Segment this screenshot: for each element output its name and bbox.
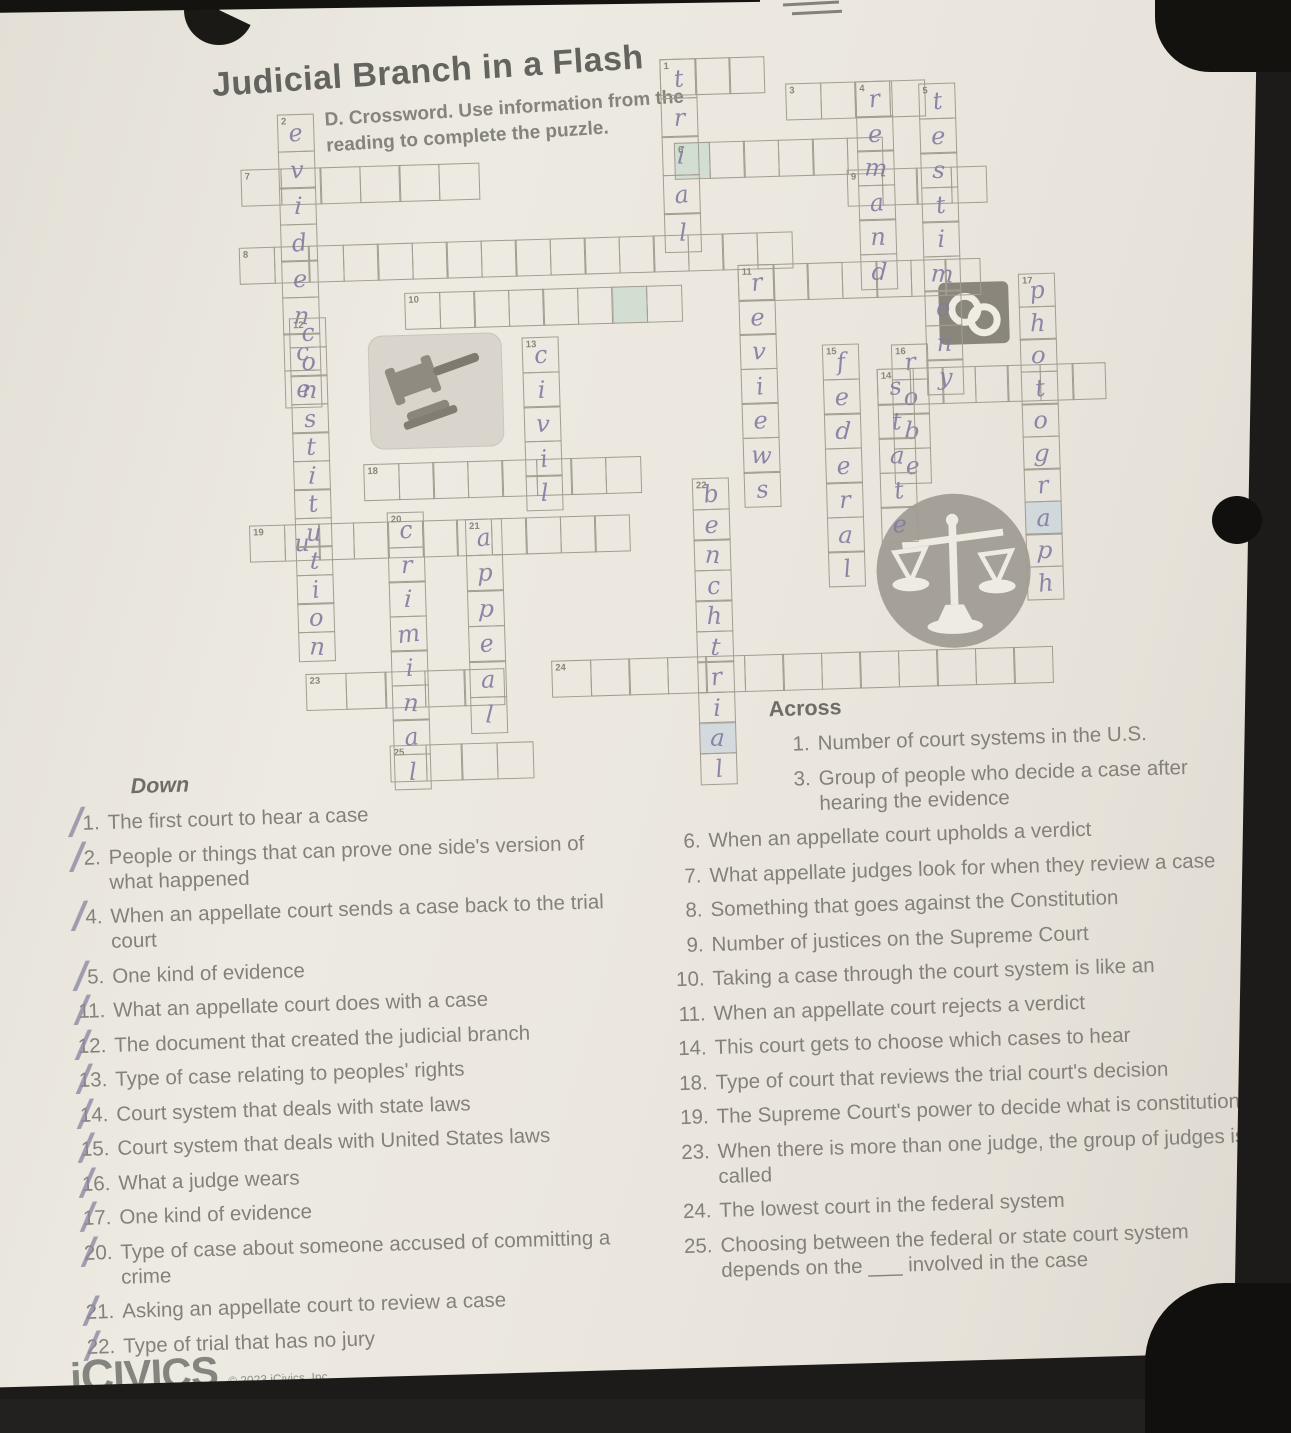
grid-cell	[618, 236, 655, 274]
grid-cell	[667, 656, 708, 694]
grid-cell	[846, 137, 883, 175]
handwritten-letter: t	[306, 435, 316, 459]
clue-number: 25.	[666, 1233, 713, 1284]
grid-cell	[628, 657, 669, 695]
clue-number: 14.	[62, 1102, 109, 1128]
grid-cell: 2e	[277, 114, 315, 153]
grid-cell: t	[921, 186, 959, 223]
clue-text: The lowest court in the federal system	[719, 1182, 1273, 1223]
grid-cell: i	[922, 220, 960, 257]
handwritten-letter: b	[904, 419, 921, 444]
handwritten-letter: c	[398, 517, 414, 542]
handwritten-letter: d	[290, 230, 308, 256]
handwritten-letter: e	[931, 123, 946, 147]
handwritten-letter: t	[307, 491, 319, 516]
grid-cell: n	[282, 296, 320, 335]
handwritten-letter: e	[753, 408, 768, 432]
clue-text: Type of court that reviews the trial cou…	[715, 1053, 1269, 1094]
clue-number: 9.	[657, 932, 704, 958]
grid-cell: o	[1022, 403, 1060, 438]
handwritten-letter: i	[406, 656, 414, 680]
handwritten-letter: l	[540, 481, 548, 505]
handwritten-letter: i	[538, 446, 548, 471]
cell-number: 24	[555, 662, 566, 673]
cell-number: 10	[408, 295, 419, 306]
grid-cell: l	[470, 696, 508, 734]
grid-cell: r	[660, 97, 698, 138]
handwritten-letter: t	[672, 66, 684, 91]
grid-cell	[377, 243, 414, 281]
handwritten-letter: e	[287, 120, 304, 145]
grid-cell	[605, 456, 642, 494]
grid-cell	[756, 231, 793, 269]
grid-cell: i	[662, 135, 700, 176]
handwritten-letter: n	[704, 542, 721, 567]
handwritten-letter: e	[905, 453, 922, 478]
grid-cell	[743, 140, 780, 178]
handwritten-letter: b	[702, 481, 720, 507]
cell-number: 8	[243, 250, 249, 261]
handwritten-letter: g	[1033, 440, 1050, 465]
cell-number: 15	[826, 346, 837, 357]
handwritten-letter: e	[834, 384, 849, 408]
handwritten-letter: e	[296, 376, 311, 400]
handwritten-letter: i	[293, 194, 302, 218]
clue-number: 5.	[58, 964, 105, 990]
grid-cell: l	[664, 212, 702, 253]
clue-number: 23.	[663, 1139, 710, 1190]
cell-number: 6	[678, 145, 684, 156]
grid-cell: h	[1019, 305, 1057, 340]
handwritten-letter: a	[838, 522, 854, 547]
grid-cell: m	[390, 615, 428, 652]
grid-cell	[841, 261, 878, 299]
grid-cell: 6	[674, 142, 711, 180]
handwritten-letter: p	[477, 560, 493, 584]
cell-number: 22	[696, 480, 707, 491]
grid-cell: y	[926, 358, 964, 395]
grid-cell: o	[297, 602, 335, 633]
grid-cell	[594, 514, 631, 552]
handwritten-letter: r	[839, 488, 851, 512]
grid-cell: e	[284, 369, 322, 408]
grid-cell: o	[1020, 338, 1058, 373]
grid-cell: p	[467, 589, 505, 627]
handwritten-letter: u	[306, 520, 322, 544]
grid-cell: t	[294, 488, 332, 519]
grid-cell: c	[694, 569, 732, 602]
grid-cell	[467, 460, 504, 498]
grid-cell: 1	[659, 58, 696, 96]
clue-text: When an appellate court sends a case bac…	[110, 889, 632, 954]
cell-number: 3	[789, 85, 795, 96]
handwritten-letter: d	[871, 259, 888, 284]
handwritten-letter: p	[1028, 277, 1046, 303]
clue-number: 14.	[660, 1036, 707, 1062]
grid-cell: t	[292, 431, 330, 462]
clue-text: The document that created the judicial b…	[114, 1017, 636, 1057]
handwritten-letter: n	[402, 690, 419, 715]
grid-cell: v	[524, 405, 562, 442]
grid-cell: r	[1024, 468, 1062, 503]
photo-hole	[1212, 496, 1262, 544]
grid-cell	[398, 462, 435, 500]
grid-cell	[854, 80, 891, 118]
down-clue-13: 13.Type of case relating to peoples' rig…	[61, 1052, 636, 1094]
grid-cell: g	[1023, 435, 1061, 470]
grid-cell: d	[860, 253, 898, 290]
grid-cell: i	[296, 574, 334, 605]
grid-cell: w	[743, 436, 781, 473]
clue-text: Something that goes against the Constitu…	[710, 881, 1264, 922]
down-clue-15: 15.Court system that deals with United S…	[63, 1121, 638, 1163]
handwritten-letter: n	[293, 303, 310, 328]
cell-number: 1	[663, 61, 669, 72]
grid-cell	[463, 668, 505, 706]
grid-cell: 24	[551, 660, 592, 698]
down-clue-21: 21.Asking an appellate court to review a…	[68, 1284, 643, 1326]
grid-cell	[1072, 362, 1107, 400]
across-clue-23: 23.When there is more than one judge, th…	[663, 1122, 1272, 1190]
grid-cell: a	[393, 718, 431, 755]
cell-number: 11	[742, 267, 752, 278]
grid-cell: e	[738, 298, 776, 335]
down-clue-2: 2.People or things that can prove one si…	[54, 829, 630, 896]
down-clue-11: 11.What an appellate court does with a c…	[59, 983, 634, 1025]
grid-cell: 16r	[891, 343, 929, 380]
handwritten-letter: i	[537, 377, 545, 401]
grid-cell: s	[291, 403, 329, 434]
handwritten-letter: a	[890, 443, 906, 468]
across-clue-list: 1.Number of court systems in the U.S.3.G…	[651, 718, 1275, 1284]
grid-cell: d	[824, 412, 862, 449]
handwritten-letter: e	[479, 631, 496, 656]
across-clues-section: Across 1.Number of court systems in the …	[650, 682, 1275, 1294]
grid-cell	[820, 652, 861, 690]
grid-cell: s	[744, 471, 782, 508]
handwritten-letter: n	[301, 377, 318, 402]
clue-number: 15.	[63, 1136, 110, 1162]
grid-cell: 11	[737, 264, 774, 302]
handwritten-letter: h	[1036, 570, 1054, 596]
grid-cell: a	[469, 660, 507, 698]
handwritten-letter: e	[750, 305, 765, 329]
grid-cell: e	[693, 508, 731, 541]
grid-cell: 23	[305, 673, 347, 711]
handwritten-letter: r	[1035, 472, 1049, 497]
grid-cell: t	[878, 402, 916, 439]
handwritten-letter: e	[704, 512, 719, 536]
grid-cell	[359, 165, 401, 203]
grid-cell	[424, 669, 466, 707]
handwritten-letter: r	[673, 105, 685, 129]
cell-number: 17	[1022, 275, 1033, 286]
grid-cell	[722, 232, 759, 270]
clue-number: 10.	[658, 967, 705, 993]
clue-text: This court gets to choose which cases to…	[714, 1019, 1268, 1060]
grid-cell: n	[291, 374, 329, 405]
clue-number: 11.	[659, 1001, 706, 1027]
grid-cell	[806, 262, 843, 300]
grid-cell: l	[526, 474, 564, 511]
down-clue-5: 5.One kind of evidence	[58, 948, 633, 990]
grid-cell	[398, 164, 440, 202]
grid-cell: u	[283, 524, 320, 562]
handwritten-letter: o	[903, 384, 918, 408]
clue-number: 4.	[56, 904, 103, 955]
grid-cell	[705, 655, 746, 693]
grid-cell	[549, 238, 586, 276]
cell-number: 23	[309, 676, 320, 687]
grid-cell	[728, 56, 765, 94]
grid-cell: 20c	[387, 511, 425, 548]
grid-cell	[950, 166, 987, 204]
handwritten-letter: i	[403, 587, 412, 611]
grid-cell	[384, 670, 426, 708]
grid-cell: a	[1025, 500, 1063, 535]
grid-cell: n	[694, 538, 732, 571]
cell-number: 25	[394, 747, 405, 758]
grid-cell	[536, 458, 573, 496]
grid-cell	[974, 365, 1009, 403]
grid-cell	[432, 461, 469, 499]
cell-number: 2	[281, 116, 287, 127]
grid-cell: i	[525, 440, 563, 477]
grid-cell	[708, 141, 745, 179]
grid-cell	[439, 291, 476, 329]
grid-cell	[318, 523, 355, 561]
photographed-worksheet: Judicial Branch in a Flash D. Crossword.…	[0, 0, 1291, 1399]
grid-cell	[570, 457, 607, 495]
grid-cell	[345, 672, 387, 710]
grid-cell: 12c	[289, 317, 327, 348]
handwritten-letter: a	[403, 724, 420, 750]
handwritten-letter: a	[673, 181, 690, 207]
handwritten-letter: o	[309, 605, 324, 629]
scales-of-justice-icon	[874, 492, 1033, 651]
clue-text: People or things that can prove one side…	[108, 829, 630, 894]
grid-cell	[646, 285, 683, 323]
handwritten-letter: e	[868, 121, 883, 145]
handwritten-letter: l	[485, 702, 494, 726]
grid-cell	[577, 287, 614, 325]
grid-cell: a	[879, 437, 917, 474]
handwritten-letter: t	[931, 89, 943, 114]
grid-cell: 18	[363, 463, 400, 501]
grid-cell	[1039, 363, 1074, 401]
grid-cell: e	[742, 402, 780, 439]
handwritten-letter: w	[751, 442, 773, 467]
grid-cell: h	[695, 599, 733, 632]
grid-cell	[974, 647, 1015, 685]
clue-text: Taking a case through the court system i…	[712, 950, 1266, 991]
grid-cell: e	[894, 447, 932, 484]
handwritten-letter: r	[903, 349, 917, 374]
handwritten-letter: r	[749, 270, 763, 295]
handwritten-letter: o	[301, 349, 316, 373]
handwritten-letter: f	[835, 350, 847, 375]
handwritten-letter: n	[309, 634, 326, 659]
clue-number: 21.	[68, 1299, 115, 1325]
grid-cell: r	[737, 264, 775, 301]
clue-text: Court system that deals with United Stat…	[117, 1121, 639, 1161]
grid-cell	[387, 520, 424, 558]
cell-number: 14	[881, 371, 892, 382]
handwritten-letter: i	[754, 374, 764, 399]
grid-cell	[342, 244, 379, 282]
handwritten-letter: h	[706, 604, 722, 628]
clue-number: 11.	[59, 998, 106, 1024]
clue-number: 2.	[54, 845, 101, 896]
grid-cell: e	[919, 117, 957, 154]
grid-cell: 21a	[465, 518, 503, 556]
grid-cell: i	[279, 187, 317, 226]
grid-cell: t	[696, 630, 734, 663]
clue-text: Group of people who decide a case after …	[818, 752, 1261, 815]
grid-cell: r	[697, 660, 735, 693]
handwritten-letter: u	[294, 530, 310, 554]
clue-text: The Supreme Court's power to decide what…	[716, 1088, 1270, 1129]
grid-cell: n	[859, 218, 897, 255]
handwritten-letter: m	[396, 620, 421, 646]
down-clue-list: 1.The first court to hear a case2.People…	[53, 795, 644, 1360]
grid-cell: 7	[240, 169, 282, 207]
handwritten-letter: a	[481, 667, 496, 691]
cell-number: 5	[922, 85, 928, 96]
clue-text: Choosing between the federal or state co…	[720, 1216, 1275, 1282]
grid-cell: p	[1026, 533, 1064, 568]
grid-cell: i	[293, 460, 331, 491]
cell-number: 9	[851, 171, 857, 182]
handwritten-letter: t	[934, 192, 946, 217]
handwritten-letter: t	[1034, 375, 1046, 400]
handwritten-letter: p	[478, 596, 495, 621]
cell-number: 12	[293, 320, 304, 331]
down-clue-1: 1.The first court to hear a case	[53, 795, 628, 837]
clue-number: 13.	[61, 1067, 108, 1093]
grid-cell: n	[298, 631, 336, 662]
grid-cell: r	[388, 546, 426, 583]
grid-cell	[772, 263, 809, 301]
handwritten-letter: p	[1036, 538, 1053, 563]
handwritten-letter: v	[751, 339, 766, 364]
handwritten-letter: h	[1030, 310, 1046, 334]
handwritten-letter: e	[293, 267, 308, 291]
grid-cell	[559, 515, 596, 553]
grid-cell	[744, 654, 785, 692]
grid-cell: s	[877, 368, 915, 405]
grid-cell: a	[858, 184, 896, 221]
down-clues-section: Down 1.The first court to hear a case2.P…	[52, 759, 644, 1370]
clue-text: One kind of evidence	[119, 1190, 641, 1230]
grid-cell: 3	[785, 82, 822, 120]
grid-cell: 22b	[692, 477, 730, 510]
grid-cell	[875, 260, 912, 298]
grid-cell: o	[892, 378, 930, 415]
grid-cell: u	[295, 517, 333, 548]
grid-cell: 4r	[855, 80, 893, 117]
grid-cell: c	[283, 332, 321, 371]
grid-cell: e	[823, 378, 861, 415]
grid-cell	[782, 653, 823, 691]
clue-number: 12.	[60, 1033, 107, 1059]
handwritten-letter: i	[676, 143, 685, 167]
grid-cell: t	[296, 545, 334, 576]
cell-number: 19	[253, 527, 264, 538]
clue-text: When there is more than one judge, the g…	[717, 1122, 1272, 1188]
grid-cell	[525, 516, 562, 554]
handwritten-letter: v	[290, 157, 304, 181]
grid-cell	[438, 163, 480, 201]
handwritten-letter: v	[535, 412, 550, 437]
grid-cell	[411, 242, 448, 280]
handwritten-letter: r	[867, 86, 881, 111]
clue-number: 17.	[65, 1205, 112, 1231]
grid-cell	[909, 367, 944, 405]
grid-cell: 13c	[521, 336, 559, 373]
grid-cell	[473, 290, 510, 328]
across-clue-3: 3.Group of people who decide a case afte…	[764, 752, 1261, 817]
grid-cell: t	[659, 58, 697, 99]
clue-number: 3.	[764, 766, 811, 817]
handcuffs-icon	[938, 281, 1010, 345]
grid-cell	[881, 168, 918, 206]
clue-text: Type of case relating to peoples' rights	[115, 1052, 637, 1092]
handwritten-letter: o	[1031, 343, 1047, 368]
grid-cell: a	[663, 174, 701, 215]
grid-cell: e	[825, 447, 863, 484]
clue-text: What appellate judges look for when they…	[709, 846, 1263, 887]
grid-cell	[1007, 364, 1042, 402]
handwritten-letter: m	[864, 155, 888, 180]
grid-cell: a	[827, 516, 865, 553]
grid-cell: e	[468, 625, 506, 663]
grid-cell	[897, 649, 938, 687]
grid-cell	[273, 246, 310, 284]
grid-cell: v	[278, 150, 316, 189]
grid-cell: n	[392, 684, 430, 721]
grid-cell: 5t	[918, 83, 956, 120]
down-clue-20: 20.Type of case about someone accused of…	[66, 1224, 642, 1291]
handwritten-letter: t	[309, 548, 320, 573]
grid-cell: d	[280, 223, 318, 262]
grid-cell	[777, 139, 814, 177]
clue-text: What a judge wears	[118, 1155, 640, 1195]
handwritten-letter: i	[310, 577, 320, 602]
grid-cell	[694, 57, 731, 95]
grid-cell: l	[828, 550, 866, 587]
clue-text: Number of justices on the Supreme Court	[711, 915, 1265, 956]
grid-cell	[859, 650, 900, 688]
handwritten-letter: r	[709, 664, 723, 689]
grid-cell: h	[1027, 565, 1065, 600]
handwritten-letter: c	[294, 339, 310, 364]
grid-cell	[687, 233, 724, 271]
grid-cell	[812, 138, 849, 176]
down-clue-14: 14.Court system that deals with state la…	[62, 1086, 637, 1128]
grid-cell: 10	[404, 292, 441, 330]
grid-cell: e	[856, 115, 894, 152]
clue-number: 24.	[665, 1198, 712, 1224]
clue-number: 16.	[64, 1171, 111, 1197]
handwritten-letter: a	[1036, 505, 1051, 529]
grid-cell	[280, 167, 322, 205]
grid-cell: r	[826, 481, 864, 518]
grid-cell: b	[893, 412, 931, 449]
clue-number: 1.	[53, 810, 100, 836]
handwritten-letter: a	[869, 190, 886, 216]
grid-cell: 8	[239, 247, 276, 285]
